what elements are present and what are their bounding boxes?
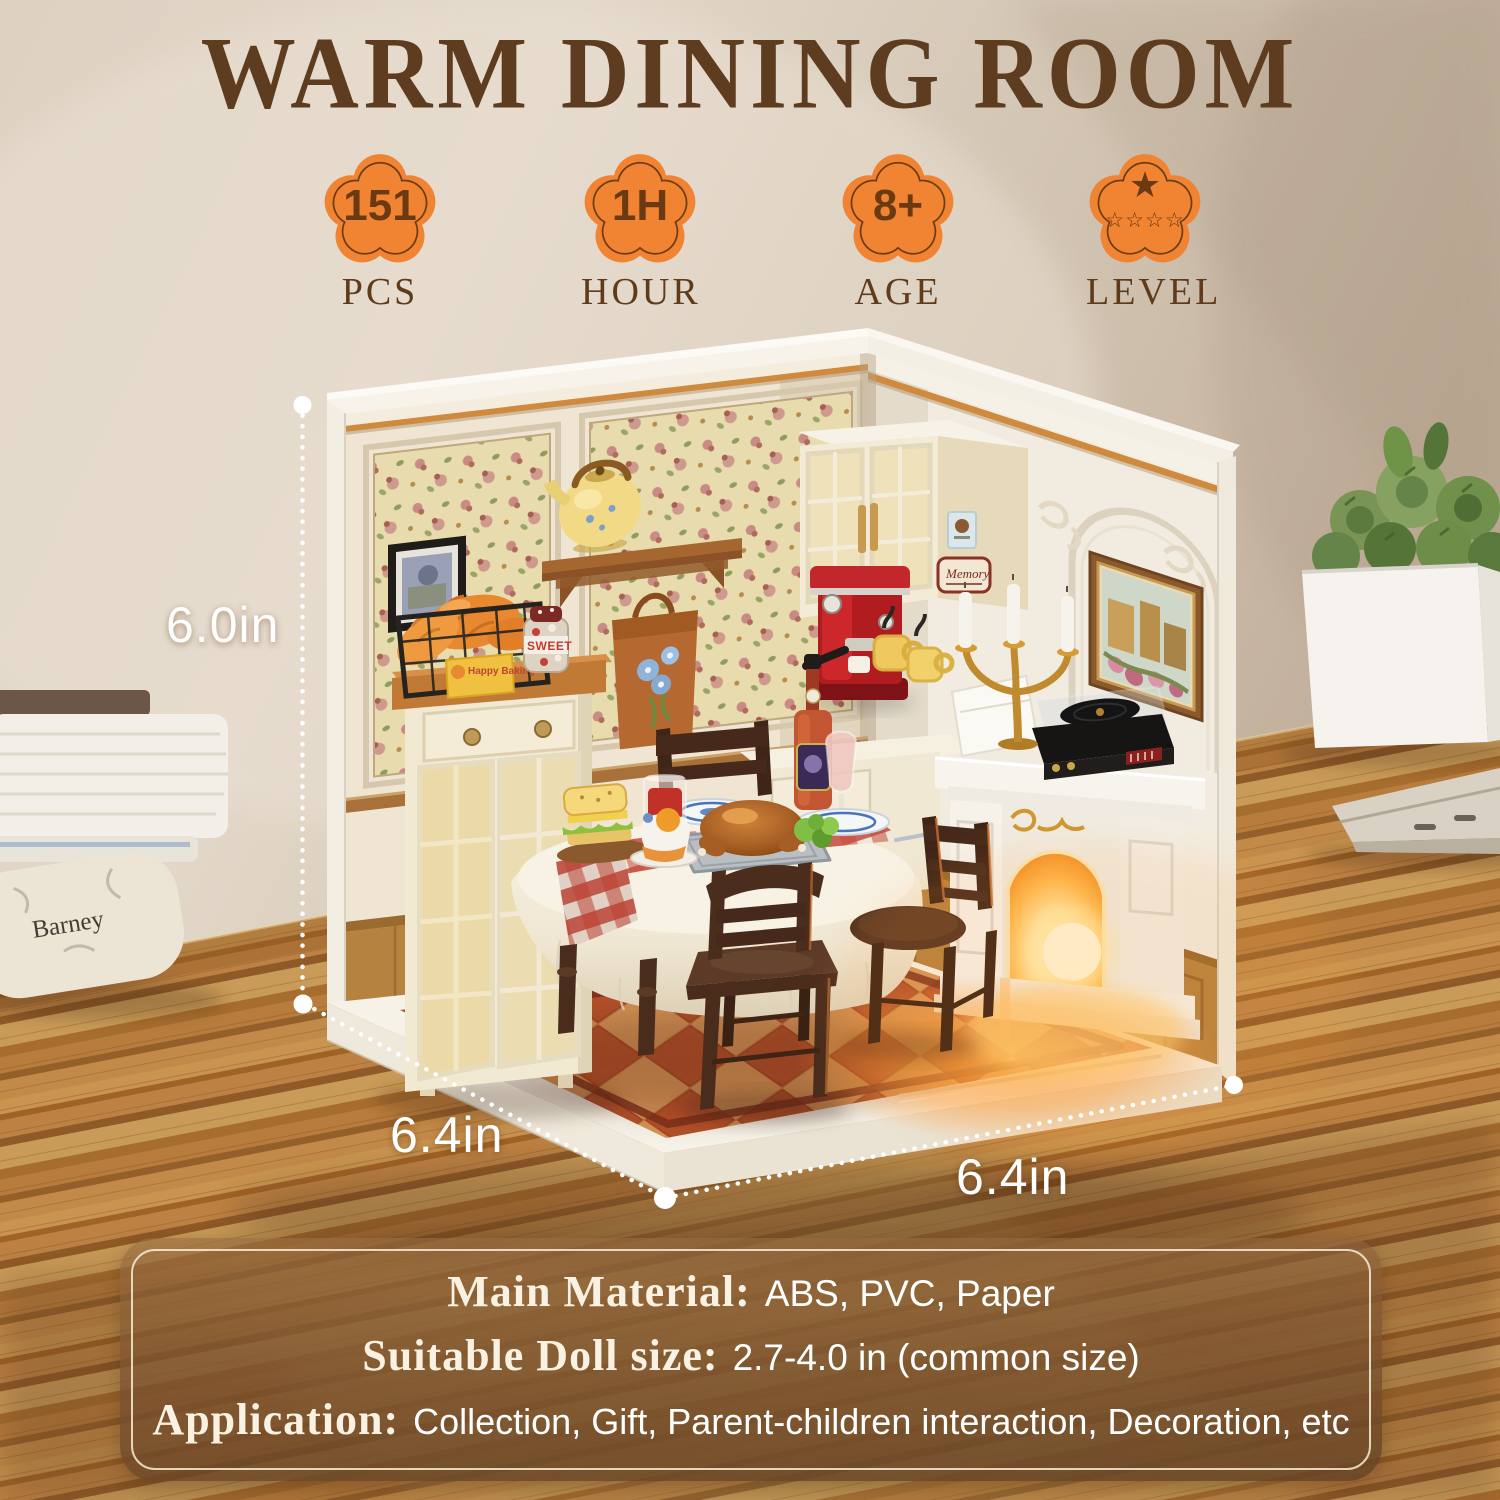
spec-application-value: Collection, Gift, Parent-children intera… xyxy=(413,1401,1349,1442)
spec-application-label: Application: xyxy=(152,1395,399,1444)
spec-row-material: Main Material:ABS, PVC, Paper xyxy=(120,1266,1382,1317)
dimension-height-label: 6.0in xyxy=(166,596,279,654)
level-star-filled: ★ xyxy=(1086,164,1204,206)
level-stars-outline: ☆☆☆☆ xyxy=(1086,208,1204,233)
spec-doll-size-label: Suitable Doll size: xyxy=(362,1331,718,1380)
badge-pcs-value: 151 xyxy=(321,181,439,231)
badge-hour-label: HOUR xyxy=(581,270,699,314)
dimension-width-label: 6.4in xyxy=(956,1148,1069,1206)
endpoint-dot xyxy=(294,995,313,1014)
spec-row-doll-size: Suitable Doll size:2.7-4.0 in (common si… xyxy=(120,1330,1382,1381)
endpoint-dot xyxy=(654,1187,676,1209)
dimension-depth-label: 6.4in xyxy=(390,1106,503,1164)
spec-doll-size-value: 2.7-4.0 in (common size) xyxy=(733,1337,1140,1378)
spec-row-application: Application:Collection, Gift, Parent-chi… xyxy=(120,1394,1382,1445)
endpoint-dot xyxy=(294,396,312,414)
badge-hour: 1H HOUR xyxy=(581,152,699,314)
jar-label-text: SWEET xyxy=(527,639,572,653)
badge-pcs-label: PCS xyxy=(321,270,439,314)
record-player xyxy=(1032,687,1174,780)
badge-hour-value: 1H xyxy=(581,181,699,231)
page-title: WARM DINING ROOM xyxy=(0,14,1500,133)
badge-age-label: AGE xyxy=(839,270,957,314)
spec-material-value: ABS, PVC, Paper xyxy=(765,1273,1055,1314)
miniature-room: Memory xyxy=(327,328,1350,1192)
bird-sticker xyxy=(948,512,976,548)
badge-level-label: LEVEL xyxy=(1086,270,1204,314)
badge-level: ★ ☆☆☆☆ LEVEL xyxy=(1086,152,1204,314)
badge-age-value: 8+ xyxy=(839,181,957,231)
spec-material-label: Main Material: xyxy=(447,1267,751,1316)
memory-sign-text: Memory xyxy=(945,566,990,581)
badge-pcs: 151 PCS xyxy=(321,152,439,314)
endpoint-dot xyxy=(1225,1076,1243,1094)
spec-panel: Main Material:ABS, PVC, Paper Suitable D… xyxy=(120,1238,1382,1481)
badge-age: 8+ AGE xyxy=(839,152,957,314)
